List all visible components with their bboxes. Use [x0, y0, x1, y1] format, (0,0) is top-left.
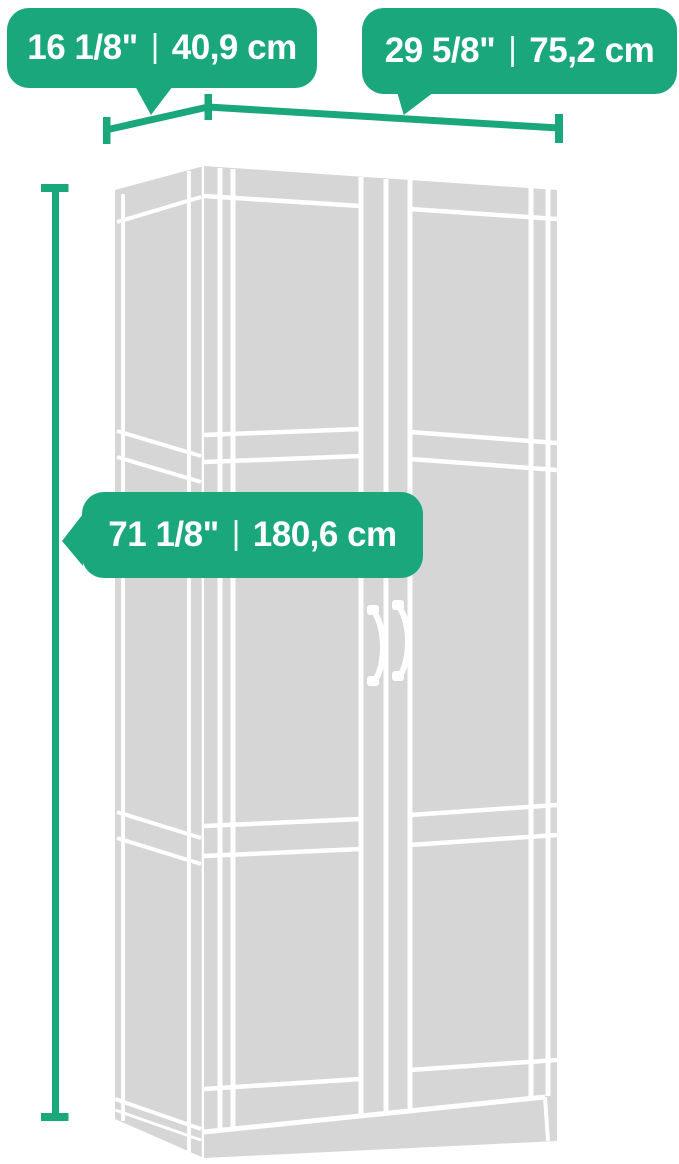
depth-dimension-line — [103, 107, 208, 144]
width-dimension-label: 29 5/8" | 75,2 cm — [362, 8, 677, 94]
depth-cm-value: 40,9 cm — [172, 28, 297, 68]
height-cm-value: 180,6 cm — [253, 515, 397, 555]
depth-dimension-label: 16 1/8" | 40,9 cm — [7, 8, 317, 88]
cabinet-line-drawing — [0, 0, 679, 1164]
width-cm-value: 75,2 cm — [529, 31, 654, 71]
unit-separator: | — [151, 27, 159, 65]
height-dimension-label: 71 1/8" | 180,6 cm — [82, 492, 423, 578]
height-dimension-line — [41, 184, 69, 1121]
width-dimension-line — [205, 94, 564, 143]
product-dimension-diagram: 16 1/8" | 40,9 cm 29 5/8" | 75,2 cm 71 1… — [0, 0, 679, 1164]
cabinet-side-panel — [115, 166, 204, 1158]
unit-separator: | — [232, 514, 240, 552]
unit-separator: | — [508, 30, 516, 68]
depth-inches-value: 16 1/8" — [27, 28, 137, 68]
height-inches-value: 71 1/8" — [108, 515, 218, 555]
width-inches-value: 29 5/8" — [385, 31, 495, 71]
